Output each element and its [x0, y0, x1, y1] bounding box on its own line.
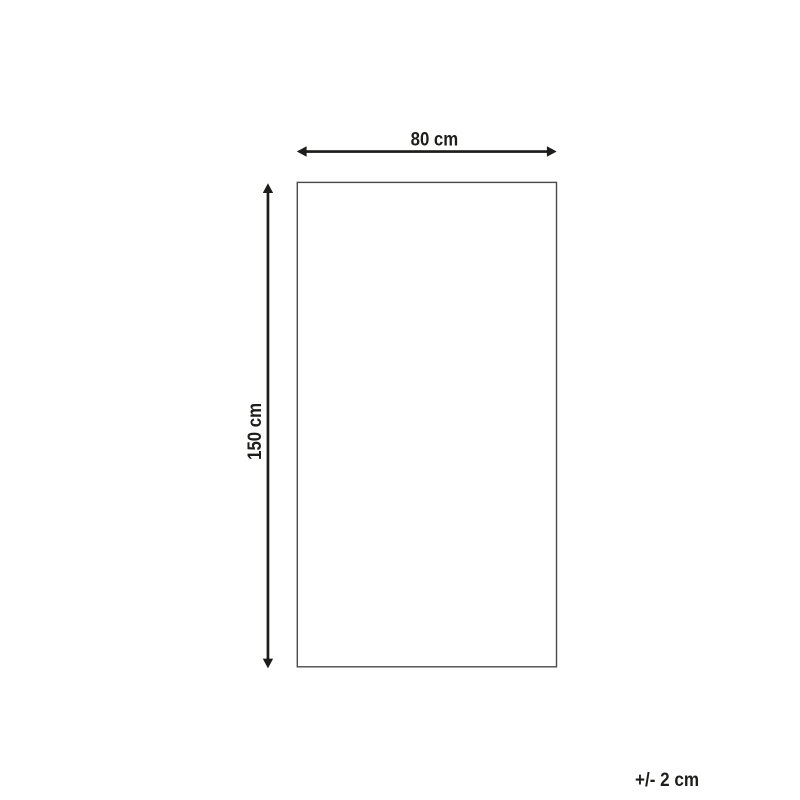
svg-text:150 cm: 150 cm [245, 403, 266, 460]
svg-text:+/- 2 cm: +/- 2 cm [635, 770, 699, 791]
svg-text:80 cm: 80 cm [411, 130, 459, 151]
